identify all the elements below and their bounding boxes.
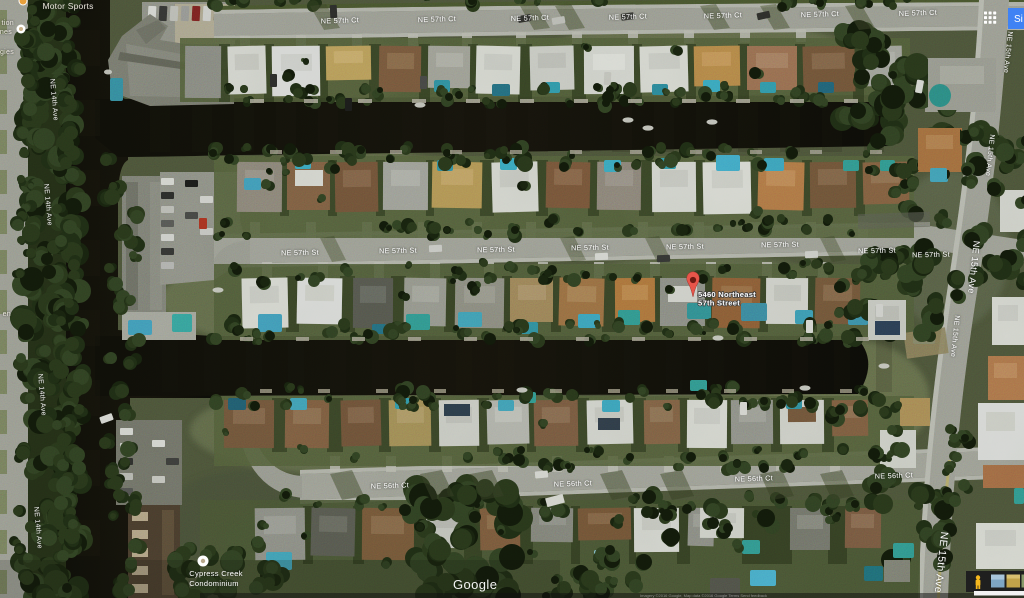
svg-text:NE 57th Ct: NE 57th Ct bbox=[704, 10, 742, 20]
svg-text:NE 56th Ct: NE 56th Ct bbox=[554, 478, 592, 488]
svg-text:NE 57th Ct: NE 57th Ct bbox=[801, 9, 839, 19]
svg-text:NE 57th St: NE 57th St bbox=[666, 242, 704, 252]
svg-text:NE 57th St: NE 57th St bbox=[477, 245, 515, 255]
svg-text:NE 56th Ct: NE 56th Ct bbox=[875, 470, 913, 480]
svg-text:NE 57th Ct: NE 57th Ct bbox=[418, 14, 456, 24]
svg-text:NE 57th St: NE 57th St bbox=[912, 250, 950, 260]
svg-text:NE 57th Ct: NE 57th Ct bbox=[321, 15, 359, 25]
svg-text:NE 57th St: NE 57th St bbox=[858, 246, 896, 256]
svg-text:NE 57th St: NE 57th St bbox=[571, 243, 609, 253]
svg-text:NE 57th Ct: NE 57th Ct bbox=[511, 13, 549, 23]
svg-text:Condominium: Condominium bbox=[189, 579, 239, 588]
svg-text:NE 57th Ct: NE 57th Ct bbox=[899, 8, 937, 18]
svg-text:nes: nes bbox=[0, 29, 12, 36]
svg-text:tion: tion bbox=[2, 20, 15, 27]
svg-text:en: en bbox=[3, 311, 11, 318]
svg-text:Imagery ©2016 Google, Map data: Imagery ©2016 Google, Map data ©2016 Goo… bbox=[640, 593, 767, 598]
svg-text:NE 57th Ct: NE 57th Ct bbox=[609, 11, 647, 21]
svg-text:Motor Sports: Motor Sports bbox=[42, 1, 93, 11]
svg-text:Si: Si bbox=[1014, 14, 1023, 25]
svg-text:NE 57th St: NE 57th St bbox=[281, 248, 319, 258]
svg-text:NE 56th Ct: NE 56th Ct bbox=[371, 480, 409, 490]
svg-text:57th Street: 57th Street bbox=[698, 299, 740, 308]
svg-text:Cypress Creek: Cypress Creek bbox=[189, 569, 243, 578]
svg-text:NE 57th St: NE 57th St bbox=[379, 246, 417, 256]
svg-text:NE 56th Ct: NE 56th Ct bbox=[735, 473, 773, 483]
svg-text:NE 57th St: NE 57th St bbox=[761, 240, 799, 250]
svg-text:Google: Google bbox=[453, 577, 497, 592]
svg-text:gies: gies bbox=[0, 49, 14, 56]
